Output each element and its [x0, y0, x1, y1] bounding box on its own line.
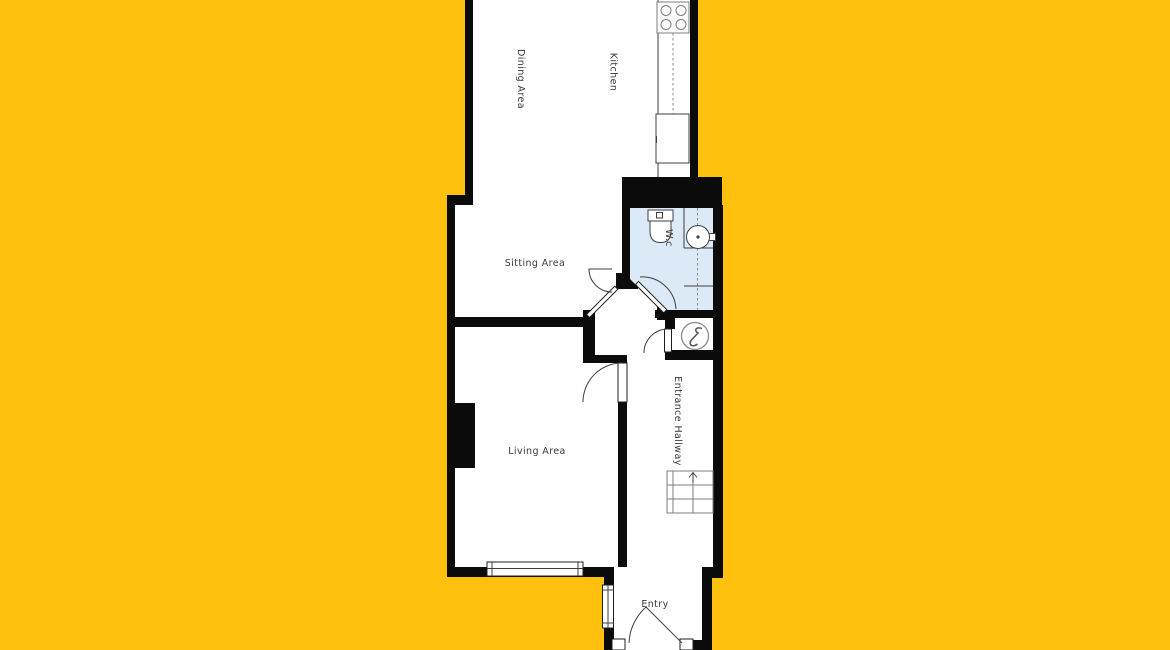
- burner: [676, 6, 686, 16]
- entry-door-post-right: [680, 639, 693, 650]
- label-entrance-hallway: Entrance Hallway: [672, 376, 683, 465]
- label-kitchen: Kitchen: [608, 53, 619, 92]
- burner: [661, 20, 671, 30]
- floorplan-canvas: Dining Area Kitchen Sitting Area W.c Liv…: [0, 0, 1170, 650]
- wall-left-main: [447, 195, 455, 577]
- wall-sitting-living-divider: [447, 317, 595, 327]
- living-door-leaf: [618, 363, 627, 402]
- burner: [661, 6, 671, 16]
- floorplan-svg: Dining Area Kitchen Sitting Area W.c Liv…: [0, 0, 1170, 650]
- wall-dining-left: [465, 0, 473, 205]
- wall-kitchen-right: [690, 0, 698, 178]
- entry-side-window: [603, 585, 614, 628]
- label-living-area: Living Area: [508, 446, 566, 457]
- wall-cupboard-bottom: [665, 350, 722, 360]
- chimney-breast: [447, 403, 475, 468]
- stove-hob-icon: [657, 2, 689, 33]
- wall-kitchen-wc-divider: [622, 177, 722, 208]
- stairs-outline: [667, 471, 713, 513]
- wall-living-right: [618, 402, 627, 567]
- wall-right-main: [713, 205, 723, 578]
- label-dining-area: Dining Area: [515, 49, 526, 109]
- living-area-window: [487, 562, 583, 576]
- staircase-icon: [667, 471, 713, 513]
- label-entry: Entry: [641, 599, 668, 610]
- wall-junction-horizontal: [583, 355, 627, 363]
- cupboard-door-leaf: [665, 329, 672, 352]
- appliance-unit: [656, 114, 689, 163]
- wall-cupboard-left: [665, 317, 675, 329]
- label-wc: W.c: [663, 229, 674, 247]
- wall-entry-right: [702, 567, 712, 650]
- sink-drain: [696, 235, 699, 238]
- label-sitting-area: Sitting Area: [505, 258, 566, 269]
- entry-door-post-left: [612, 639, 625, 650]
- electric-meter-icon: [682, 323, 709, 350]
- wall-wc-left: [622, 205, 630, 280]
- burner: [676, 20, 686, 30]
- toilet-flush-button: [657, 213, 663, 219]
